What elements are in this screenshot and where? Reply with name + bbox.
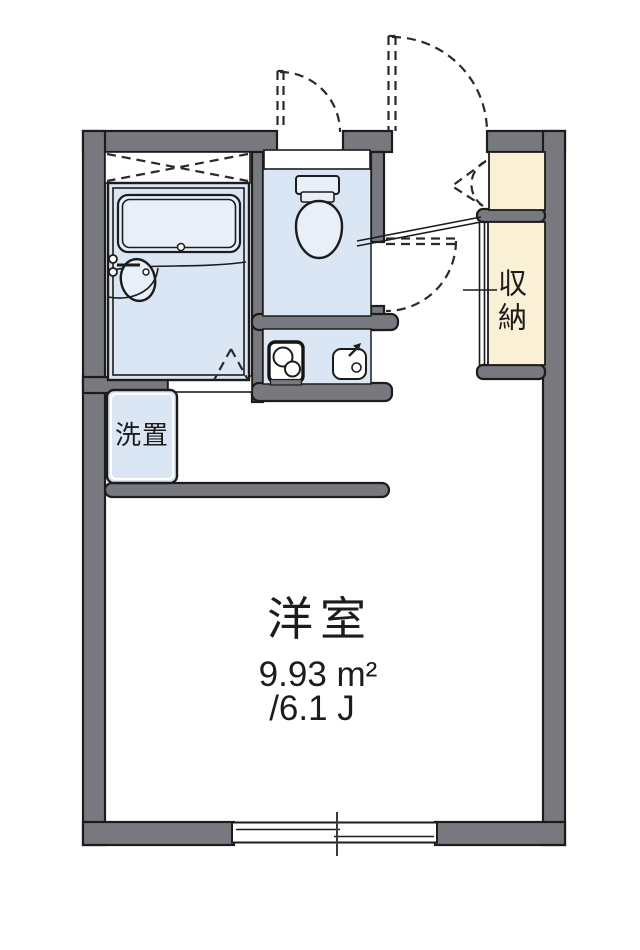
bath-faucet-knob-bottom [109,268,117,276]
storage-label: 収納 [494,247,524,357]
bath-faucet-outlet [143,269,149,275]
closet-separator-wall [477,209,545,222]
toilet-window-leaf [278,71,284,131]
floor-plan-drawing [0,0,640,950]
window-frame [232,823,437,843]
toilet-fixture [296,176,342,258]
bottom-wall-left [83,822,234,845]
top-wall-mid [343,131,392,152]
entrance-door-swing-arc [392,37,487,132]
main-room-label: 洋室 [245,595,395,643]
entrance-door-leaf [389,36,396,131]
kitchen-sink-drain [352,363,361,372]
bath-window-strip [105,152,250,183]
toilet-bowl [296,201,342,258]
bottom-wall-right [435,822,565,845]
sliding-window [232,812,437,856]
stove-base [271,380,302,386]
toilet-window-sill [264,150,370,169]
room-partition-wall [105,483,389,497]
toilet-right-wall-upper [371,152,384,242]
bathtub-drain [178,244,185,251]
top-wall-left [83,131,277,152]
bath-toilet-divider-wall [252,152,263,402]
washer-space-label: 洗置 [107,422,177,449]
kitchen-bottom-wall [252,383,392,401]
closet-bottom-wall [477,365,545,379]
shoe-cabinet [489,152,545,210]
closet-sliding-door [480,222,485,365]
left-wall [83,131,105,845]
kitchen-sink [333,349,366,379]
room-door-leaf [386,239,456,245]
right-wall [543,131,565,845]
shoe-cabinet-door-leaf [452,161,486,206]
bath-faucet-knob-top [109,255,117,263]
main-room-area-jo: /6.1 J [222,691,402,728]
floor-plan-page: 洋室 9.93 m² /6.1 J 収納 洗置 [0,0,640,950]
room-door-swing-arc [386,241,456,311]
toilet-window-swing-arc [280,72,340,132]
stove-burner-right [285,362,300,377]
